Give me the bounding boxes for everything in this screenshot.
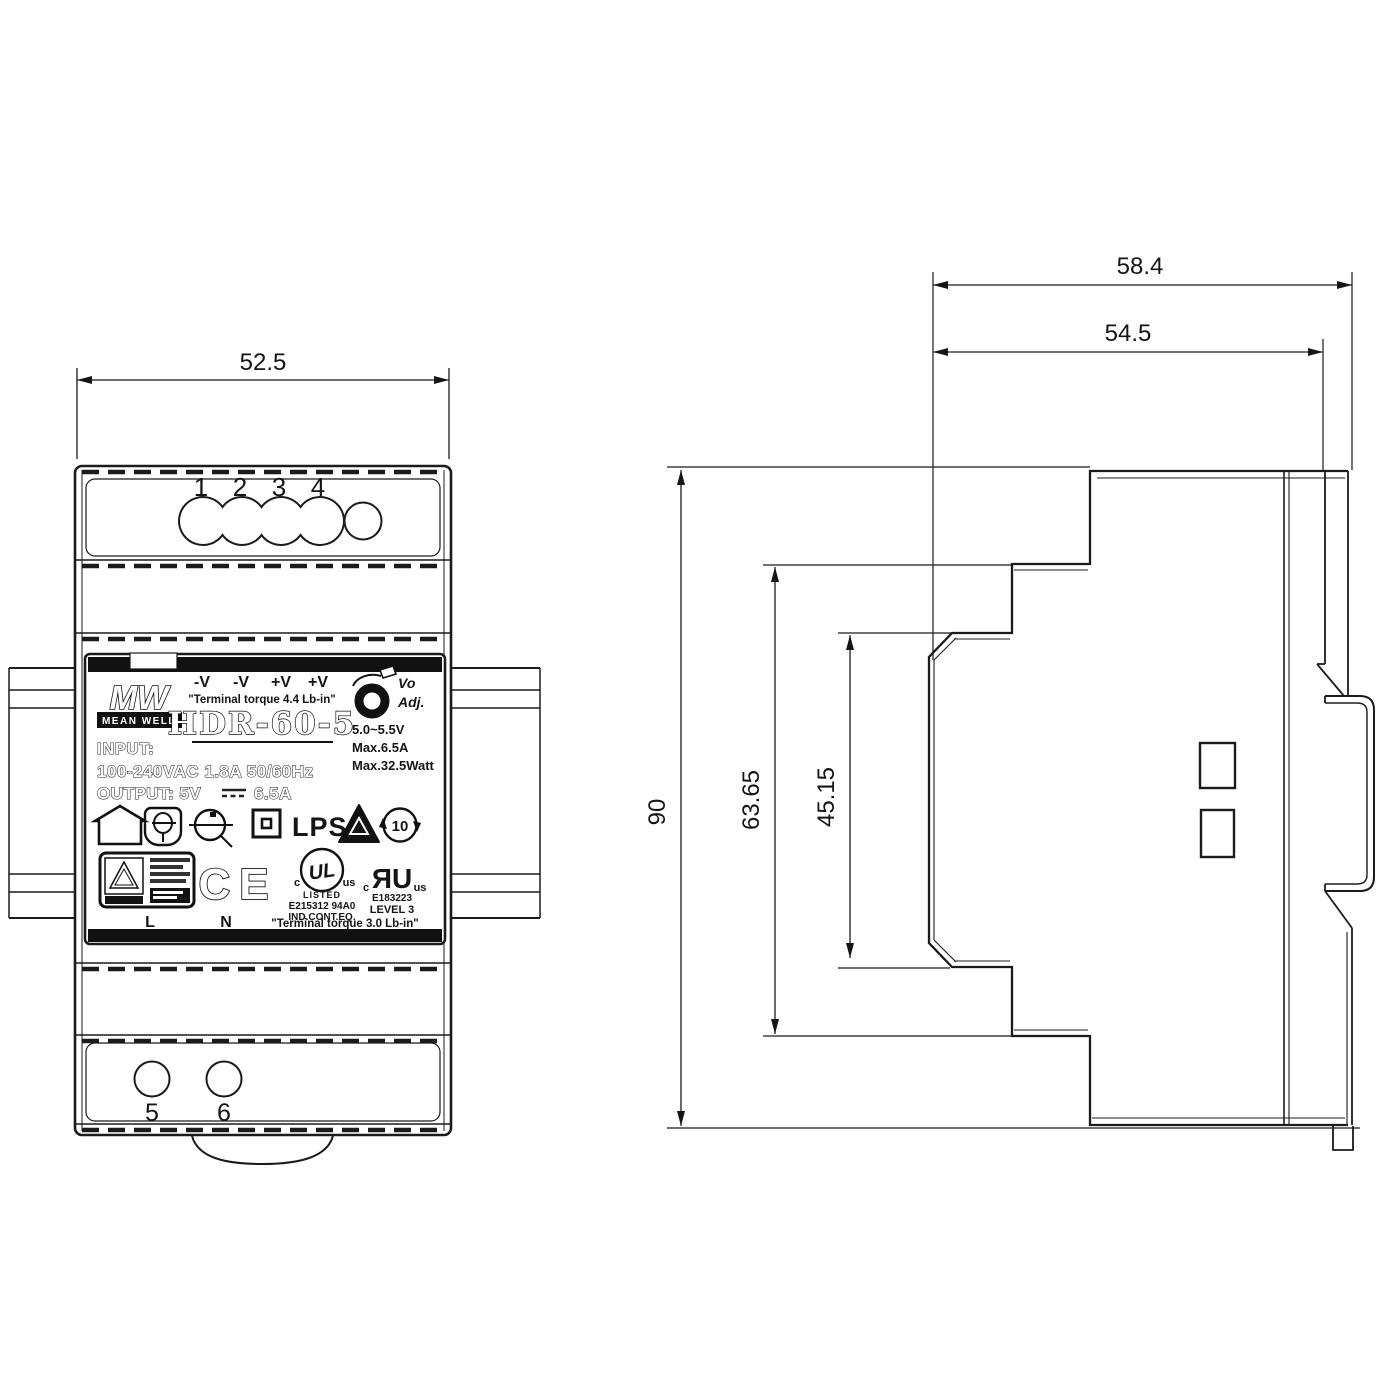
input-rating: 100-240VAC 1.8A 50/60Hz bbox=[97, 762, 314, 781]
terminal-hole-5 bbox=[135, 1062, 170, 1097]
ul-listed-text: LISTED bbox=[303, 890, 341, 900]
rohs-years: 10 bbox=[392, 818, 409, 835]
mw-logo-text: MW bbox=[110, 679, 171, 716]
output-heading: OUTPUT: 5V bbox=[97, 784, 201, 803]
mid-height-dimension: 63.65 bbox=[738, 770, 765, 830]
side-profile bbox=[929, 471, 1348, 1125]
torque-note-top: "Terminal torque 4.4 Lb-in" bbox=[188, 694, 335, 706]
input-heading: INPUT: bbox=[97, 741, 155, 758]
max-current: Max.6.5A bbox=[352, 740, 409, 755]
terminal-mark-1: -V bbox=[194, 674, 210, 691]
ul-c: c bbox=[294, 877, 300, 889]
ce-mark: CE bbox=[198, 860, 277, 909]
terminal-number-5: 5 bbox=[145, 1099, 159, 1127]
terminal-mark-2: -V bbox=[233, 674, 249, 691]
terminal-mark-3: +V bbox=[271, 674, 291, 691]
depth-with-rail-dimension: 58.4 bbox=[1117, 253, 1164, 280]
terminal-mark-4: +V bbox=[308, 674, 328, 691]
ru-file-number: E183223 bbox=[372, 893, 412, 904]
height-dimension: 90 bbox=[644, 799, 671, 826]
terminal-number-6: 6 bbox=[217, 1099, 231, 1127]
product-label: MW MEAN WELL -V -V +V +V "Terminal torqu… bbox=[85, 653, 445, 944]
ru-level: LEVEL 3 bbox=[370, 904, 414, 916]
ul-letters: UL bbox=[307, 859, 336, 884]
front-height-dimension: 45.15 bbox=[813, 767, 840, 827]
technical-drawing: 52.5 bbox=[0, 0, 1400, 1400]
dim-depth-front: 45.15 bbox=[813, 633, 952, 968]
ul-file-number: E215312 94A0 bbox=[289, 901, 356, 912]
voltage-adjust-range: 5.0~5.5V bbox=[352, 722, 405, 737]
terminal-hole-6 bbox=[207, 1062, 242, 1097]
depth-body-dimension: 54.5 bbox=[1105, 320, 1152, 347]
din-rail-side bbox=[1317, 471, 1374, 1150]
ru-us: us bbox=[414, 882, 427, 894]
ru-letters: ЯU bbox=[372, 863, 412, 894]
dim-depth-mid: 63.65 bbox=[738, 565, 1088, 1036]
lps-mark: LPS bbox=[292, 812, 348, 842]
brand-name: MEAN WELL bbox=[102, 716, 176, 727]
front-view: 52.5 bbox=[9, 349, 540, 1164]
adjustment-access-hole bbox=[345, 503, 382, 540]
clip-hole-upper bbox=[1200, 743, 1235, 788]
din-rail-front-right bbox=[452, 668, 540, 918]
vo-label: Vo bbox=[398, 675, 416, 691]
clip-release-tab bbox=[1333, 1125, 1353, 1150]
torque-note-bottom: "Terminal torque 3.0 Lb-in" bbox=[271, 918, 418, 930]
dimension-drawing-page: 52.5 bbox=[0, 0, 1400, 1400]
ul-us: us bbox=[343, 877, 356, 889]
din-rail-front-left bbox=[9, 668, 76, 918]
output-current: 6.5A bbox=[254, 784, 292, 803]
line-terminal-mark: L bbox=[145, 914, 155, 931]
max-power: Max.32.5Watt bbox=[352, 758, 435, 773]
ru-c: c bbox=[363, 882, 369, 894]
dim-depth-body: 54.5 bbox=[933, 320, 1323, 470]
adj-label: Adj. bbox=[397, 694, 424, 710]
clip-hole-lower bbox=[1201, 810, 1234, 857]
neutral-terminal-mark: N bbox=[220, 914, 232, 931]
front-width-dimension: 52.5 bbox=[240, 349, 287, 376]
side-view: 58.4 54.5 90 63.65 bbox=[644, 253, 1374, 1150]
label-top-notch bbox=[130, 653, 177, 669]
dim-width-front: 52.5 bbox=[77, 349, 449, 459]
model-number: HDR-60-5 bbox=[168, 706, 356, 742]
